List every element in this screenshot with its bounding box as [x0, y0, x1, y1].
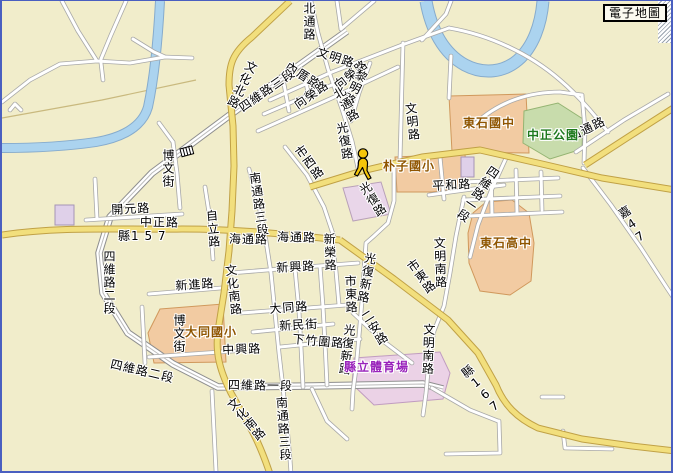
road-label: 文明路 — [403, 102, 420, 142]
road-label: 南通路三段 — [247, 171, 269, 237]
road-label: 自立路 — [204, 209, 220, 249]
road-label: 新興路 — [276, 260, 316, 275]
road-label: 四維路二段 — [109, 358, 175, 385]
place-label: 東石高中 — [480, 237, 532, 250]
road-label: 四維路二段 — [102, 250, 115, 315]
road-label: 平和路 — [432, 178, 472, 193]
road-label: 市東路 — [343, 275, 357, 314]
road-label: 新進路 — [175, 277, 215, 293]
map-canvas[interactable]: 北通路文明路內厝路向榮路向榮路黎明路北通路文化北路四維路三段光復路文明路市西路南… — [0, 0, 673, 473]
road-label: 光復路 — [334, 121, 354, 162]
road-label: 博文街 — [172, 314, 185, 353]
road-label: 下竹圍路 — [292, 333, 345, 350]
road-label: 新民街 — [279, 318, 319, 333]
road-label: 北通路 — [302, 2, 315, 41]
road-label: 中正路 — [140, 216, 179, 230]
route-number-label: 嘉47 — [615, 204, 649, 247]
road-label: 大同路 — [269, 300, 309, 316]
place-label: 縣立體育場 — [344, 361, 409, 374]
road-label: 光復路 — [356, 180, 388, 220]
road-label: 文明南路 — [420, 323, 435, 375]
road-label: 二安路 — [358, 308, 390, 348]
label-layer: 北通路文明路內厝路向榮路向榮路黎明路北通路文化北路四維路三段光復路文明路市西路南… — [2, 1, 673, 473]
electronic-map-button[interactable]: 電子地圖 — [603, 4, 667, 22]
route-number-label: 縣167 — [458, 363, 504, 417]
road-label: 海通路 — [277, 231, 316, 245]
road-label: 新榮路 — [322, 233, 336, 272]
road-label: 海通路 — [229, 233, 268, 247]
road-label: 文化南路 — [224, 396, 267, 444]
road-label: 光復新路 — [355, 251, 377, 304]
road-label: 南通路三段 — [274, 396, 292, 462]
place-label: 中正公園 — [527, 129, 579, 142]
road-label: 文化南路 — [223, 263, 242, 316]
road-label: 四維路一段 — [454, 163, 501, 224]
place-label: 朴子國小 — [383, 160, 435, 173]
route-number-label: 縣1 5 7 — [118, 230, 167, 243]
road-label: 市西路 — [292, 143, 325, 182]
road-label: 四維路一段 — [228, 379, 293, 393]
road-label: 文明南路 — [432, 237, 447, 289]
place-label: 東石國中 — [463, 117, 515, 130]
road-label: 博文街 — [161, 149, 174, 188]
place-label: 大同國小 — [185, 326, 237, 339]
road-label: 中興路 — [222, 343, 261, 357]
